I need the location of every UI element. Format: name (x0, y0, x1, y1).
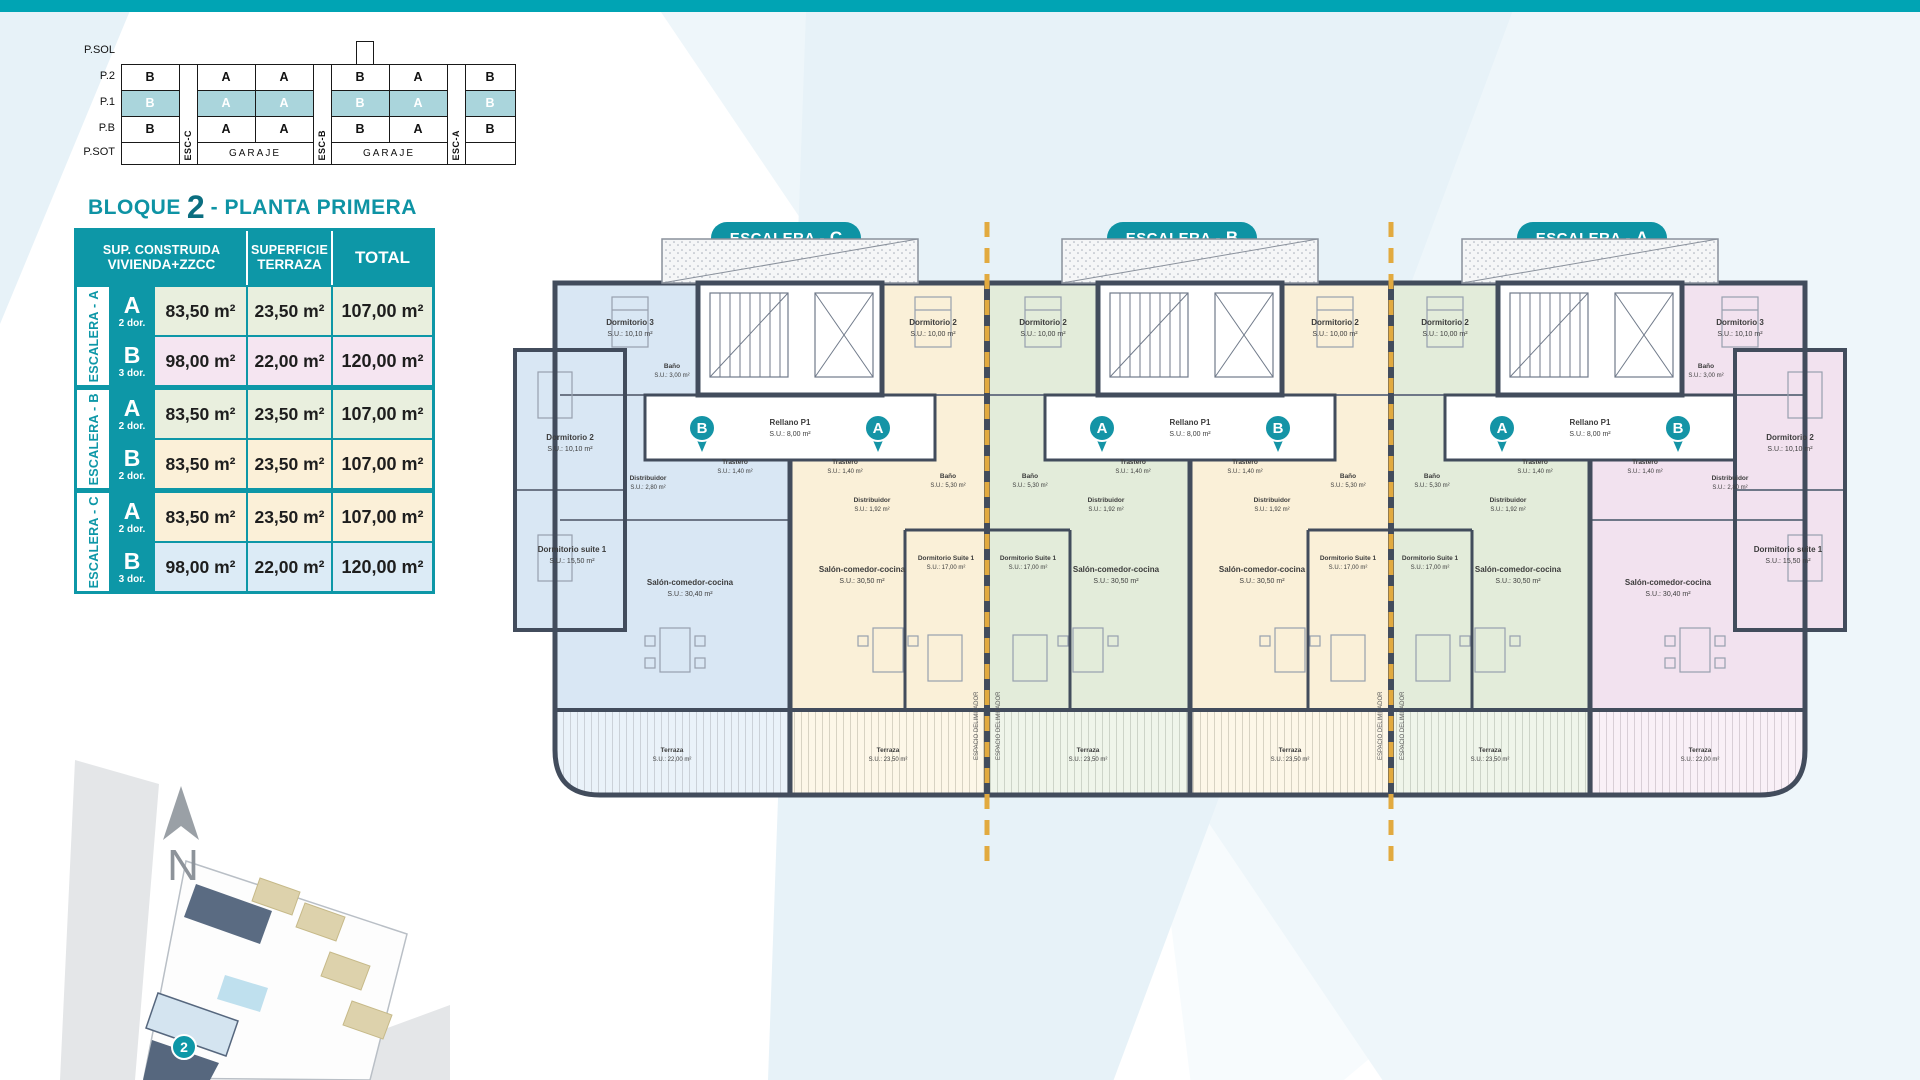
type-cell: A2 dor. (111, 287, 153, 335)
type-cell: B3 dor. (111, 543, 153, 591)
room-label: Distribuidor (1712, 475, 1749, 482)
section-cell: A (389, 64, 448, 91)
table-row: A2 dor. 83,50 m² 23,50 m² 107,00 m² (111, 390, 432, 438)
group-rows: A2 dor. 83,50 m² 23,50 m² 107,00 m² B3 d… (111, 287, 432, 385)
terrace-label: Terraza (1279, 747, 1302, 754)
group-label: ESCALERA - B (77, 390, 109, 488)
road (60, 760, 159, 1080)
total-value: 107,00 m² (333, 287, 432, 335)
group-label-text: ESCALERA - A (86, 290, 101, 382)
room-label: Dormitorio 3 (1716, 318, 1764, 327)
terrace-su: S.U.: 22,00 m² (1681, 757, 1720, 763)
room-label: Salón-comedor-cocina (819, 565, 906, 574)
table-header-row: SUP. CONSTRUIDA VIVIENDA+ZZCC SUPERFICIE… (77, 231, 432, 285)
room-label: Dormitorio suite 1 (538, 545, 607, 554)
type-dorms: 3 dor. (119, 369, 146, 379)
separator-note: ESPACIO DELIMITADOR (974, 691, 980, 760)
type-letter: B (124, 550, 141, 573)
room-label: Dormitorio Suite 1 (1320, 555, 1377, 562)
terrace-su: S.U.: 23,50 m² (1271, 757, 1310, 763)
section-cell: B (331, 116, 390, 143)
section-cell: B (465, 116, 516, 143)
total-value: 107,00 m² (333, 390, 432, 438)
north-arrow: N (163, 786, 199, 890)
section-cell: A (255, 116, 314, 143)
header-line: TOTAL (355, 248, 410, 268)
section-cell: B (465, 64, 516, 91)
room-su: S.U.: 10,10 m² (1717, 331, 1763, 338)
section-cell: A (255, 64, 314, 91)
room-label: Dormitorio 2 (909, 318, 957, 327)
esc-column: ESC-B (313, 64, 332, 165)
room-label: Dormitorio 2 (1019, 318, 1067, 327)
room-label: Dormitorio 2 (1766, 433, 1814, 442)
room-label: Trastero (832, 459, 858, 466)
title-block-number: 2 (187, 194, 205, 220)
room-label: Trastero (1632, 459, 1658, 466)
header-line: SUP. CONSTRUIDA (103, 243, 220, 257)
room-label: Trastero (722, 459, 748, 466)
room-label: Baño (664, 363, 680, 370)
total-value: 107,00 m² (333, 493, 432, 541)
section-cell: A (197, 64, 256, 91)
terrace-su: S.U.: 23,50 m² (869, 757, 908, 763)
section-cell-highlight: A (255, 90, 314, 117)
floor-label: P.B (75, 122, 115, 134)
floor-label: P.SOL (75, 44, 115, 56)
room-su: S.U.: 1,92 m² (1088, 507, 1123, 513)
header-superficie-terraza: SUPERFICIE TERRAZA (248, 231, 331, 285)
table-row: B3 dor. 98,00 m² 22,00 m² 120,00 m² (111, 543, 432, 591)
room-su: S.U.: 2,80 m² (1712, 485, 1747, 491)
room-label: Distribuidor (1254, 497, 1291, 504)
section-cell-highlight: B (121, 90, 180, 117)
garaje-cell: GARAJE (197, 142, 314, 165)
building-section-diagram: P.SOL P.2 P.1 P.B P.SOT B ESC-C A A ESC-… (75, 36, 525, 176)
type-dorms: 2 dor. (119, 525, 146, 535)
rellano-su: S.U.: 8,00 m² (769, 431, 811, 438)
type-letter: B (124, 344, 141, 367)
separator-note: ESPACIO DELIMITADOR (1378, 691, 1384, 760)
group-label: ESCALERA - C (77, 493, 109, 591)
header-total: TOTAL (333, 231, 432, 285)
total-value: 120,00 m² (333, 337, 432, 385)
group-letter: C (86, 496, 101, 506)
table-row: B2 dor. 83,50 m² 23,50 m² 107,00 m² (111, 440, 432, 488)
room-label: Dormitorio Suite 1 (1000, 555, 1057, 562)
room-label: Dormitorio 2 (1421, 318, 1469, 327)
type-cell: B3 dor. (111, 337, 153, 385)
room-label: Dormitorio 2 (1311, 318, 1359, 327)
group-rows: A2 dor. 83,50 m² 23,50 m² 107,00 m² B3 d… (111, 493, 432, 591)
room-label: Baño (940, 473, 956, 480)
type-dorms: 2 dor. (119, 319, 146, 329)
header-line: SUPERFICIE (251, 243, 328, 257)
room-su: S.U.: 10,00 m² (1020, 331, 1066, 338)
section-cell: A (389, 116, 448, 143)
room-su: S.U.: 3,00 m² (654, 373, 689, 379)
rellano-name: Rellano P1 (770, 418, 811, 427)
room-su: S.U.: 1,40 m² (1627, 469, 1662, 475)
room-label: Salón-comedor-cocina (1219, 565, 1306, 574)
stair-tower (356, 41, 374, 65)
table-group-escalera-b: ESCALERA - B A2 dor. 83,50 m² 23,50 m² 1… (77, 390, 432, 488)
type-letter: A (124, 397, 141, 420)
room-label: Baño (1698, 363, 1714, 370)
title-block-word: BLOQUE (88, 196, 181, 220)
room-su: S.U.: 30,50 m² (839, 578, 885, 585)
room-label: Baño (1424, 473, 1440, 480)
terrace-label: Terraza (1479, 747, 1502, 754)
rellano-su: S.U.: 8,00 m² (1569, 431, 1611, 438)
rellano-name: Rellano P1 (1570, 418, 1611, 427)
surface-area-table: SUP. CONSTRUIDA VIVIENDA+ZZCC SUPERFICIE… (74, 228, 435, 594)
group-prefix: ESCALERA - (87, 300, 101, 383)
group-prefix: ESCALERA - (87, 403, 101, 486)
room-su: S.U.: 1,40 m² (1115, 469, 1150, 475)
room-su: S.U.: 1,40 m² (1517, 469, 1552, 475)
group-letter: A (86, 290, 101, 300)
pin-letter: B (1673, 420, 1684, 437)
room-label: Trastero (1120, 459, 1146, 466)
type-letter: B (124, 447, 141, 470)
esc-label: ESC-C (183, 130, 193, 161)
terraza-value: 23,50 m² (248, 440, 331, 488)
room-su: S.U.: 17,00 m² (1411, 565, 1450, 571)
section-cell-highlight: A (389, 90, 448, 117)
sup-value: 83,50 m² (155, 440, 246, 488)
section-cell-empty (465, 142, 516, 165)
room-su: S.U.: 17,00 m² (927, 565, 966, 571)
floor-label: P.1 (75, 96, 115, 108)
page: P.SOL P.2 P.1 P.B P.SOT B ESC-C A A ESC-… (0, 0, 1920, 1080)
room-su: S.U.: 1,92 m² (1490, 507, 1525, 513)
section-cell: B (121, 116, 180, 143)
room-su: S.U.: 1,92 m² (854, 507, 889, 513)
room-label: Trastero (1522, 459, 1548, 466)
terrace-label: Terraza (661, 747, 684, 754)
table-row: B3 dor. 98,00 m² 22,00 m² 120,00 m² (111, 337, 432, 385)
pin-letter: A (1497, 420, 1508, 437)
room-su: S.U.: 15,50 m² (549, 558, 595, 565)
separator-note: ESPACIO DELIMITADOR (1400, 691, 1406, 760)
table-row: A2 dor. 83,50 m² 23,50 m² 107,00 m² (111, 287, 432, 335)
sup-value: 98,00 m² (155, 543, 246, 591)
type-cell: B2 dor. (111, 440, 153, 488)
terraza-value: 23,50 m² (248, 493, 331, 541)
pin-letter: A (1097, 420, 1108, 437)
table-group-escalera-c: ESCALERA - C A2 dor. 83,50 m² 23,50 m² 1… (77, 493, 432, 591)
terrace-label: Terraza (877, 747, 900, 754)
header-line: VIVIENDA+ZZCC (108, 257, 216, 273)
terraza-value: 23,50 m² (248, 390, 331, 438)
room-label: Baño (1022, 473, 1038, 480)
type-cell: A2 dor. (111, 390, 153, 438)
type-cell: A2 dor. (111, 493, 153, 541)
room-label: Dormitorio 3 (606, 318, 654, 327)
pin-letter: A (873, 420, 884, 437)
section-cell: B (121, 64, 180, 91)
header-sup-construida: SUP. CONSTRUIDA VIVIENDA+ZZCC (77, 231, 246, 285)
type-dorms: 2 dor. (119, 422, 146, 432)
room-label: Dormitorio Suite 1 (1402, 555, 1459, 562)
floor-plan: B A A B A B Rellano P1 S.U.: 8,00 m² Rel… (500, 215, 1860, 880)
room-su: S.U.: 5,30 m² (1414, 483, 1449, 489)
top-accent-bar (0, 0, 1920, 12)
section-cell-highlight: B (465, 90, 516, 117)
room-su: S.U.: 10,00 m² (1312, 331, 1358, 338)
group-label: ESCALERA - A (77, 287, 109, 385)
group-rows: A2 dor. 83,50 m² 23,50 m² 107,00 m² B2 d… (111, 390, 432, 488)
terraza-value: 23,50 m² (248, 287, 331, 335)
room-su: S.U.: 30,50 m² (1093, 578, 1139, 585)
room-label: Trastero (1232, 459, 1258, 466)
sup-value: 83,50 m² (155, 390, 246, 438)
room-su: S.U.: 1,92 m² (1254, 507, 1289, 513)
table-row: A2 dor. 83,50 m² 23,50 m² 107,00 m² (111, 493, 432, 541)
rellano-su: S.U.: 8,00 m² (1169, 431, 1211, 438)
room-su: S.U.: 30,40 m² (1645, 591, 1691, 598)
total-value: 120,00 m² (333, 543, 432, 591)
room-label: Salón-comedor-cocina (1625, 578, 1712, 587)
sup-value: 83,50 m² (155, 493, 246, 541)
room-su: S.U.: 5,30 m² (1330, 483, 1365, 489)
terraza-value: 22,00 m² (248, 543, 331, 591)
section-cell-empty (121, 142, 180, 165)
section-cell-highlight: A (197, 90, 256, 117)
page-title: BLOQUE 2 - PLANTA PRIMERA (88, 194, 417, 220)
header-line: TERRAZA (257, 257, 322, 273)
room-su: S.U.: 30,50 m² (1495, 578, 1541, 585)
garaje-cell: GARAJE (331, 142, 448, 165)
room-su: S.U.: 1,40 m² (1227, 469, 1262, 475)
terrace-label: Terraza (1077, 747, 1100, 754)
title-plant: - PLANTA PRIMERA (211, 196, 417, 220)
terrace-su: S.U.: 23,50 m² (1069, 757, 1108, 763)
sup-value: 98,00 m² (155, 337, 246, 385)
section-cell: A (197, 116, 256, 143)
stair-core-c (662, 239, 918, 395)
type-dorms: 2 dor. (119, 472, 146, 482)
pin-letter: B (697, 420, 708, 437)
esc-label: ESC-B (317, 130, 327, 161)
section-cell: B (331, 64, 390, 91)
block-marker: 2 (172, 1035, 196, 1059)
esc-column: ESC-C (179, 64, 198, 165)
room-su: S.U.: 17,00 m² (1329, 565, 1368, 571)
rellano-name: Rellano P1 (1170, 418, 1211, 427)
total-value: 107,00 m² (333, 440, 432, 488)
terrace-su: S.U.: 23,50 m² (1471, 757, 1510, 763)
room-su: S.U.: 10,10 m² (607, 331, 653, 338)
group-prefix: ESCALERA - (87, 506, 101, 589)
north-letter: N (167, 841, 199, 890)
pin-letter: B (1273, 420, 1284, 437)
floor-label: P.2 (75, 70, 115, 82)
group-label-text: ESCALERA - C (86, 496, 101, 588)
stair-core-a (1462, 239, 1718, 395)
room-su: S.U.: 30,40 m² (667, 591, 713, 598)
room-label: Salón-comedor-cocina (647, 578, 734, 587)
terraza-value: 22,00 m² (248, 337, 331, 385)
section-grid: B ESC-C A A ESC-B B A ESC-A B B A A B A … (121, 64, 515, 164)
room-label: Distribuidor (1490, 497, 1527, 504)
block-marker-number: 2 (180, 1039, 188, 1055)
room-su: S.U.: 2,80 m² (630, 485, 665, 491)
esc-label: ESC-A (451, 130, 461, 161)
room-su: S.U.: 5,30 m² (930, 483, 965, 489)
room-label: Distribuidor (630, 475, 667, 482)
room-label: Dormitorio suite 1 (1754, 545, 1823, 554)
room-label: Salón-comedor-cocina (1475, 565, 1562, 574)
room-su: S.U.: 30,50 m² (1239, 578, 1285, 585)
separator-note: ESPACIO DELIMITADOR (996, 691, 1002, 760)
section-cell-highlight: B (331, 90, 390, 117)
room-su: S.U.: 10,00 m² (910, 331, 956, 338)
group-label-text: ESCALERA - B (86, 393, 101, 485)
room-su: S.U.: 15,50 m² (1765, 558, 1811, 565)
room-su: S.U.: 10,10 m² (1767, 446, 1813, 453)
terrace-label: Terraza (1689, 747, 1712, 754)
room-su: S.U.: 5,30 m² (1012, 483, 1047, 489)
room-label: Dormitorio 2 (546, 433, 594, 442)
floor-label: P.SOT (75, 146, 115, 158)
table-group-escalera-a: ESCALERA - A A2 dor. 83,50 m² 23,50 m² 1… (77, 287, 432, 385)
group-letter: B (86, 393, 101, 403)
room-su: S.U.: 10,10 m² (547, 446, 593, 453)
room-su: S.U.: 3,00 m² (1688, 373, 1723, 379)
esc-column: ESC-A (447, 64, 466, 165)
stair-core-b (1062, 239, 1318, 395)
terrace-su: S.U.: 22,00 m² (653, 757, 692, 763)
room-label: Distribuidor (854, 497, 891, 504)
room-label: Salón-comedor-cocina (1073, 565, 1160, 574)
room-label: Distribuidor (1088, 497, 1125, 504)
room-label: Baño (1340, 473, 1356, 480)
type-letter: A (124, 294, 141, 317)
type-letter: A (124, 500, 141, 523)
type-dorms: 3 dor. (119, 575, 146, 585)
room-label: Dormitorio Suite 1 (918, 555, 975, 562)
room-su: S.U.: 1,40 m² (717, 469, 752, 475)
room-su: S.U.: 1,40 m² (827, 469, 862, 475)
room-su: S.U.: 17,00 m² (1009, 565, 1048, 571)
sup-value: 83,50 m² (155, 287, 246, 335)
site-plan: N 2 (50, 760, 450, 1080)
room-su: S.U.: 10,00 m² (1422, 331, 1468, 338)
